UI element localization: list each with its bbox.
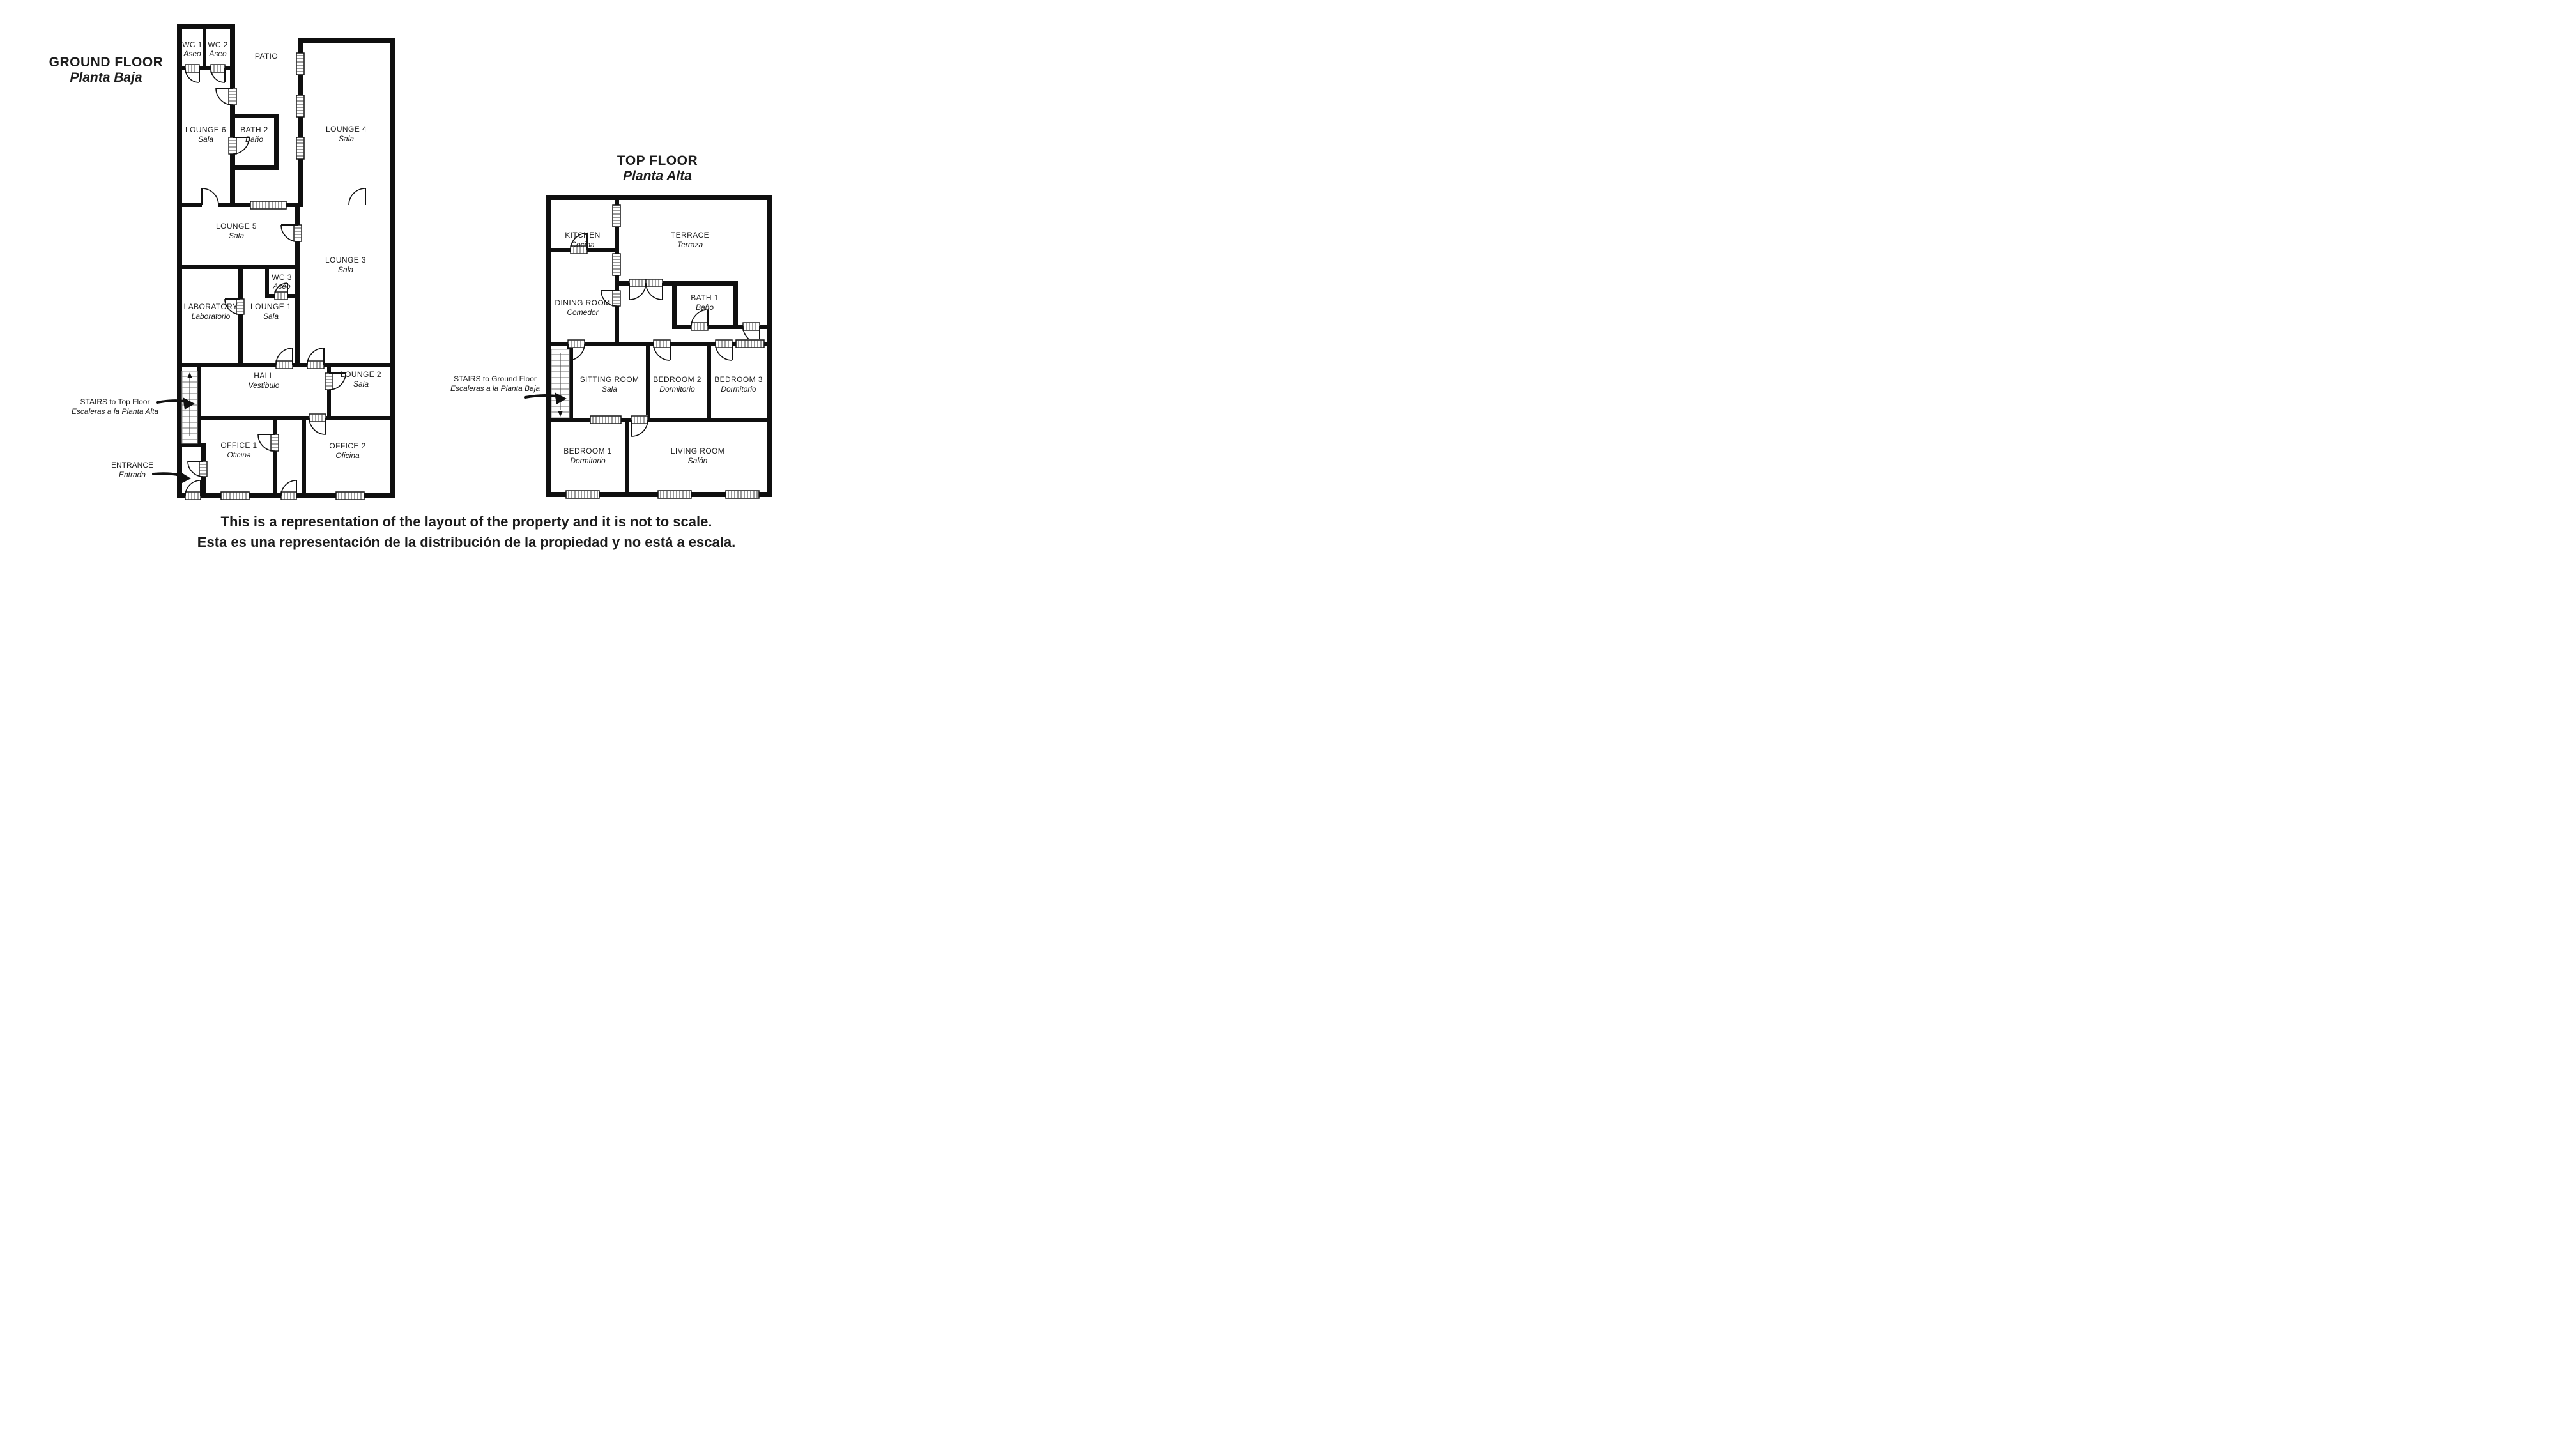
- room-wc1: WC 1 Aseo: [182, 40, 203, 58]
- window-icon: [296, 95, 305, 117]
- room-label-es: Sala: [229, 231, 244, 240]
- room-label-es: Cocina: [571, 240, 595, 249]
- room-label: OFFICE 2: [329, 441, 365, 450]
- annotation-stairs-ground: STAIRS to Top Floor Escaleras a la Plant…: [72, 397, 159, 416]
- room-bedroom3: BEDROOM 3 Dormitorio: [714, 375, 763, 394]
- door-threshold-icon: [743, 323, 760, 330]
- room-label-es: Sala: [339, 134, 354, 143]
- door-threshold-icon: [281, 492, 296, 500]
- room-label: WC 3: [272, 273, 292, 282]
- room-lounge4: LOUNGE 4 Sala: [326, 125, 367, 143]
- door-threshold-icon: [185, 492, 201, 500]
- room-label-es: Aseo: [272, 282, 291, 291]
- room-label-es: Salón: [688, 456, 708, 465]
- ground-floor-subtitle: Planta Baja: [70, 70, 142, 85]
- annotation-label-es: Escaleras a la Planta Baja: [450, 384, 540, 393]
- room-label-es: Laboratorio: [192, 312, 231, 321]
- room-label-es: Baño: [696, 303, 714, 312]
- room-lounge3: LOUNGE 3 Sala: [325, 256, 366, 274]
- room-lounge6: LOUNGE 6 Sala: [185, 125, 226, 144]
- door-threshold-icon: [276, 361, 293, 369]
- room-label: TERRACE: [671, 231, 709, 240]
- disclaimer: This is a representation of the layout o…: [197, 514, 735, 550]
- room-label-es: Comedor: [567, 308, 599, 317]
- room-label-es: Oficina: [227, 450, 251, 459]
- room-label: LOUNGE 4: [326, 125, 367, 134]
- annotation-label-es: Entrada: [119, 470, 146, 479]
- room-label: LOUNGE 6: [185, 125, 226, 134]
- room-office1: OFFICE 1 Oficina: [220, 441, 257, 459]
- door-threshold-icon: [271, 434, 279, 451]
- room-office2: OFFICE 2 Oficina: [329, 441, 365, 460]
- window-icon: [736, 339, 764, 348]
- floorplan-svg: GROUND FLOOR Planta Baja WC 1 Aseo WC 2 …: [0, 0, 1002, 562]
- room-label: BEDROOM 3: [714, 375, 763, 384]
- door-threshold-icon: [716, 340, 732, 348]
- room-label-es: Sala: [338, 265, 353, 274]
- room-label: LIVING ROOM: [671, 447, 724, 456]
- floor-plan-page: GROUND FLOOR Planta Baja WC 1 Aseo WC 2 …: [0, 0, 1002, 562]
- annotation-label: ENTRANCE: [111, 461, 153, 470]
- door-threshold-icon: [613, 291, 620, 306]
- room-label: WC 1: [182, 40, 203, 49]
- annotation-label: STAIRS to Ground Floor: [454, 374, 537, 383]
- room-lounge5: LOUNGE 5 Sala: [216, 222, 257, 240]
- room-patio: PATIO: [255, 52, 278, 61]
- annotation-arrows: [153, 392, 567, 484]
- window-icon: [658, 490, 691, 499]
- room-label: DINING ROOM: [555, 298, 610, 307]
- room-label-es: Dormitorio: [721, 385, 756, 394]
- room-terrace: TERRACE Terraza: [671, 231, 709, 249]
- room-label: LABORATORY: [184, 302, 238, 311]
- room-label-es: Baño: [245, 135, 263, 144]
- room-label-es: Oficina: [335, 451, 360, 460]
- door-threshold-icon: [294, 225, 302, 241]
- room-label: HALL: [254, 371, 274, 380]
- room-bath1: BATH 1 Baño: [691, 293, 719, 312]
- entrance-arrow-icon: [153, 471, 191, 484]
- window-icon: [726, 490, 759, 499]
- room-label: OFFICE 1: [220, 441, 257, 450]
- room-bath2: BATH 2 Baño: [240, 125, 268, 144]
- door-threshold-icon: [309, 414, 326, 422]
- door-threshold-icon: [229, 88, 236, 105]
- annotation-label: STAIRS to Top Floor: [80, 397, 150, 406]
- ground-floor-labels: GROUND FLOOR Planta Baja WC 1 Aseo WC 2 …: [49, 40, 381, 479]
- door-threshold-icon: [229, 137, 236, 154]
- window-icon: [612, 205, 621, 227]
- room-label: LOUNGE 2: [341, 370, 381, 379]
- door-threshold-icon: [307, 361, 324, 369]
- room-label-es: Dormitorio: [570, 456, 606, 465]
- room-wc2: WC 2 Aseo: [208, 40, 228, 58]
- room-sitting: SITTING ROOM Sala: [580, 375, 640, 394]
- room-label: BATH 2: [240, 125, 268, 134]
- door-threshold-icon: [211, 65, 225, 72]
- door-threshold-icon: [629, 279, 646, 287]
- room-label-es: Terraza: [677, 240, 703, 249]
- window-icon: [296, 137, 305, 159]
- top-floor-subtitle: Planta Alta: [623, 169, 692, 183]
- window-icon: [296, 53, 305, 75]
- room-hall: HALL Vestibulo: [249, 371, 280, 390]
- disclaimer-es: Esta es una representación de la distrib…: [197, 534, 735, 550]
- room-lounge2: LOUNGE 2 Sala: [341, 370, 381, 388]
- room-label-es: Aseo: [183, 49, 201, 58]
- window-icon: [566, 490, 599, 499]
- annotation-entrance: ENTRANCE Entrada: [111, 461, 153, 479]
- room-label-es: Aseo: [208, 49, 227, 58]
- room-label: LOUNGE 1: [250, 302, 291, 311]
- door-threshold-icon: [185, 65, 199, 72]
- window-icon: [221, 491, 249, 500]
- room-label: LOUNGE 3: [325, 256, 366, 264]
- door-threshold-icon: [325, 373, 333, 390]
- disclaimer-en: This is a representation of the layout o…: [221, 514, 712, 530]
- room-label-es: Sala: [198, 135, 213, 144]
- doors-windows-stairs-layer: [182, 53, 764, 500]
- door-threshold-icon: [568, 340, 585, 348]
- door-threshold-icon: [646, 279, 663, 287]
- room-label-es: Sala: [263, 312, 279, 321]
- door-threshold-icon: [631, 416, 648, 424]
- room-label: BEDROOM 2: [653, 375, 701, 384]
- stairs-icon: [551, 349, 569, 418]
- room-dining: DINING ROOM Comedor: [555, 298, 610, 317]
- room-label-es: Dormitorio: [659, 385, 695, 394]
- annotation-label-es: Escaleras a la Planta Alta: [72, 407, 159, 416]
- door-threshold-icon: [691, 323, 708, 330]
- room-bedroom2: BEDROOM 2 Dormitorio: [653, 375, 701, 394]
- room-bedroom1: BEDROOM 1 Dormitorio: [563, 447, 612, 465]
- annotation-stairs-top: STAIRS to Ground Floor Escaleras a la Pl…: [450, 374, 540, 393]
- room-label-es: Sala: [353, 379, 369, 388]
- room-wc3: WC 3 Aseo: [272, 273, 292, 291]
- ground-floor-title: GROUND FLOOR: [49, 55, 164, 70]
- top-floor-title: TOP FLOOR: [617, 153, 698, 168]
- window-icon: [612, 254, 621, 275]
- room-label-es: Sala: [602, 385, 617, 394]
- room-label: SITTING ROOM: [580, 375, 640, 384]
- window-icon: [250, 201, 286, 210]
- door-threshold-icon: [654, 340, 670, 348]
- room-label: KITCHEN: [565, 231, 600, 240]
- room-label: BEDROOM 1: [563, 447, 612, 456]
- window-icon: [336, 491, 364, 500]
- room-laboratory: LABORATORY Laboratorio: [184, 302, 238, 321]
- door-threshold-icon: [199, 461, 207, 477]
- window-icon: [590, 415, 621, 424]
- room-label: BATH 1: [691, 293, 719, 302]
- room-label-es: Vestibulo: [249, 381, 280, 390]
- room-label: WC 2: [208, 40, 228, 49]
- room-label: LOUNGE 5: [216, 222, 257, 231]
- door-threshold-icon: [275, 292, 287, 300]
- room-kitchen: KITCHEN Cocina: [565, 231, 600, 249]
- room-lounge1: LOUNGE 1 Sala: [250, 302, 291, 321]
- room-living: LIVING ROOM Salón: [671, 447, 724, 465]
